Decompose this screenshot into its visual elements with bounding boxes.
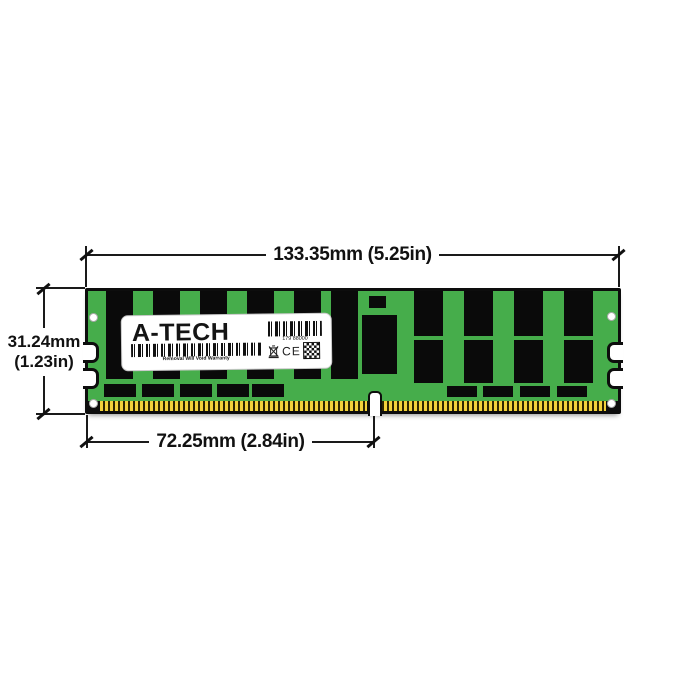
- weee-crossed-bin-icon: [268, 344, 279, 358]
- small-memory-chip: [104, 384, 136, 397]
- memory-chip: [414, 340, 443, 383]
- width-dimension-label: 133.35mm (5.25in): [266, 244, 439, 266]
- barcode-icon: [268, 321, 322, 337]
- edge-notch: [607, 368, 623, 389]
- mounting-hole: [89, 399, 98, 408]
- mounting-hole: [607, 399, 616, 408]
- part-number: 179 88000: [271, 336, 320, 342]
- ce-mark: CE: [282, 344, 301, 358]
- qr-code-icon: [304, 343, 319, 358]
- dimension-line-segment: [88, 441, 149, 443]
- memory-chip: [464, 291, 493, 336]
- edge-notch: [83, 368, 99, 389]
- memory-chip: [464, 340, 493, 383]
- small-memory-chip: [180, 384, 212, 397]
- gold-pins-right: [379, 401, 606, 411]
- gold-pins-left: [100, 401, 367, 411]
- key-notch: [368, 391, 382, 416]
- small-memory-chip: [217, 384, 249, 397]
- height-value-in: (1.23in): [14, 352, 74, 371]
- product-label: A-TECH 179 88000 Removal Will Void Warra…: [121, 313, 333, 372]
- small-component-chip: [369, 296, 386, 308]
- small-memory-chip: [252, 384, 284, 397]
- width-dimension-line: 133.35mm (5.25in): [87, 247, 618, 263]
- height-dimension-label: 31.24mm (1.23in): [8, 332, 81, 372]
- memory-chip: [514, 340, 543, 383]
- height-value-mm: 31.24mm: [8, 332, 81, 351]
- small-memory-chip: [447, 386, 477, 397]
- edge-notch: [607, 342, 623, 363]
- dimension-line-segment: [439, 254, 618, 256]
- buffer-chip: [362, 315, 397, 374]
- memory-chip: [564, 291, 593, 336]
- mounting-hole: [607, 312, 616, 321]
- memory-chip: [414, 291, 443, 336]
- contact-width-dimension-label: 72.25mm (2.84in): [149, 431, 311, 453]
- certification-marks: CE: [268, 343, 319, 359]
- memory-chip: [514, 291, 543, 336]
- dimension-line-segment: [87, 254, 266, 256]
- small-memory-chip: [557, 386, 587, 397]
- memory-module: A-TECH 179 88000 Removal Will Void Warra…: [85, 288, 621, 414]
- edge-notch: [83, 342, 99, 363]
- dimension-line-segment: [312, 441, 373, 443]
- dimension-line-segment: [43, 290, 45, 328]
- warranty-text: Removal Will Void Warranty: [141, 356, 252, 362]
- height-dimension-line: 31.24mm (1.23in): [10, 290, 78, 413]
- memory-chip: [564, 340, 593, 383]
- memory-chip: [331, 291, 358, 379]
- small-memory-chip: [142, 384, 174, 397]
- product-diagram: 133.35mm (5.25in) 31.24mm (1.23in): [0, 0, 700, 700]
- small-memory-chip: [520, 386, 550, 397]
- mounting-hole: [89, 313, 98, 322]
- dimension-line-segment: [43, 376, 45, 414]
- contact-width-dimension-line: 72.25mm (2.84in): [88, 434, 373, 450]
- small-memory-chip: [483, 386, 513, 397]
